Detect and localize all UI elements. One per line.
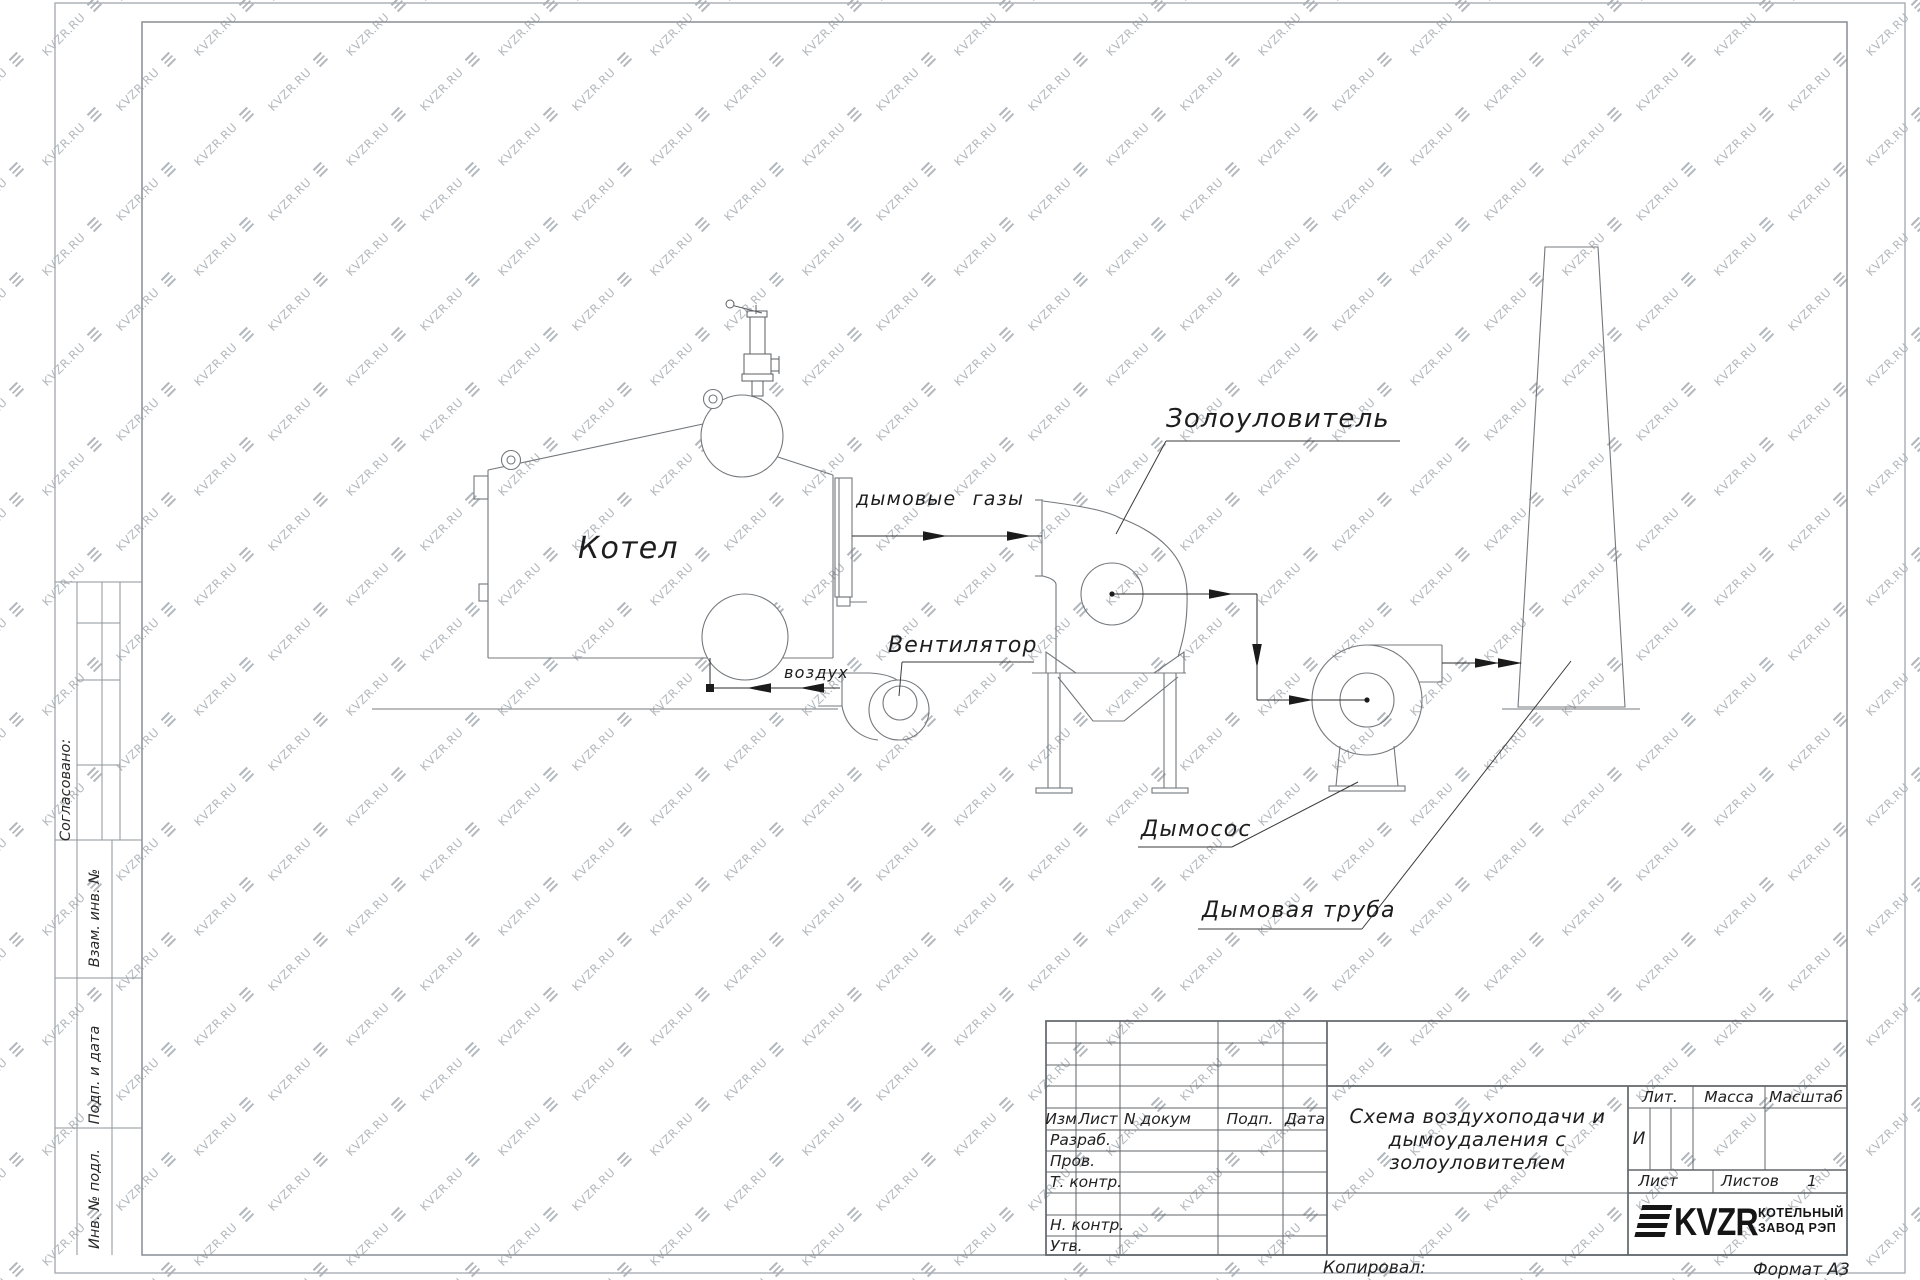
tb-listov-value: 1 [1807,1172,1817,1190]
company-name-line2: ЗАВОД РЭП [1758,1221,1836,1235]
tb-header-ndokum: N докум [1124,1110,1191,1128]
tb-row-razrab: Разраб. [1050,1131,1111,1149]
leader-lines [899,441,1571,929]
tb-row-tkontr: Т. контр. [1050,1173,1122,1191]
air-node [706,684,714,692]
kvzr-logo-text: KVZR [1674,1201,1758,1245]
drawing-sheet: KVZR.RUKVZR.RUKVZR.RUKVZR.RUKVZR.RUKVZR.… [0,0,1920,1280]
tb-header-list: Лист [1078,1110,1117,1128]
air-label: воздух [784,663,849,682]
tb-row-nkontr: Н. контр. [1050,1216,1124,1234]
tb-header-izm: Изм [1045,1110,1077,1128]
kopiroval-label: Копировал: [1323,1258,1426,1278]
tb-listov-label: Листов [1721,1172,1779,1190]
lifting-eye-left [502,451,521,470]
tb-row-prov: Пров. [1050,1152,1095,1170]
agreed-label: Согласовано: [58,739,74,841]
tb-massa-label: Масса [1704,1088,1753,1106]
inv-orig-label: Инв. № подл. [87,1149,103,1249]
smoke-exhauster-label: Дымосос [1141,817,1252,842]
chimney [1518,247,1625,707]
chimney-label: Дымовая труба [1202,898,1396,923]
tb-header-data: Дата [1285,1110,1325,1128]
tb-list-label: Лист [1638,1172,1677,1190]
company-name-line1: КОТЕЛЬНЫЙ [1758,1206,1844,1220]
tb-header-podp: Подп. [1227,1110,1274,1128]
document-title-line1: Схема воздухоподачи и [1350,1105,1606,1128]
lifting-eye-drum [704,390,723,409]
flue-gases-label: дымовые газы [856,488,1024,510]
document-title-line2: дымоудаления с [1388,1128,1566,1151]
ash-collector-label: Золоуловитель [1166,404,1390,434]
safety-valve [726,300,779,396]
tb-row-utv: Утв. [1050,1237,1083,1255]
ash-collector [1032,500,1188,793]
format-label: Формат А3 [1753,1260,1850,1280]
fan [818,673,929,740]
boiler-label: Котел [578,531,679,566]
document-title: Схема воздухоподачи и дымоудаления с зол… [1327,1088,1628,1191]
tb-lit-label: Лит. [1642,1088,1678,1106]
tb-lit-value: И [1633,1129,1646,1149]
tb-masshtab-label: Масштаб [1769,1088,1843,1106]
document-title-line3: золоуловителем [1389,1151,1565,1174]
fan-label: Вентилятор [888,633,1038,658]
lower-drum [702,594,788,680]
sign-date-label: Подп. и дата [87,1026,103,1125]
smoke-exhauster [1312,645,1442,791]
replace-inv-label: Взам. инв. № [87,869,103,967]
